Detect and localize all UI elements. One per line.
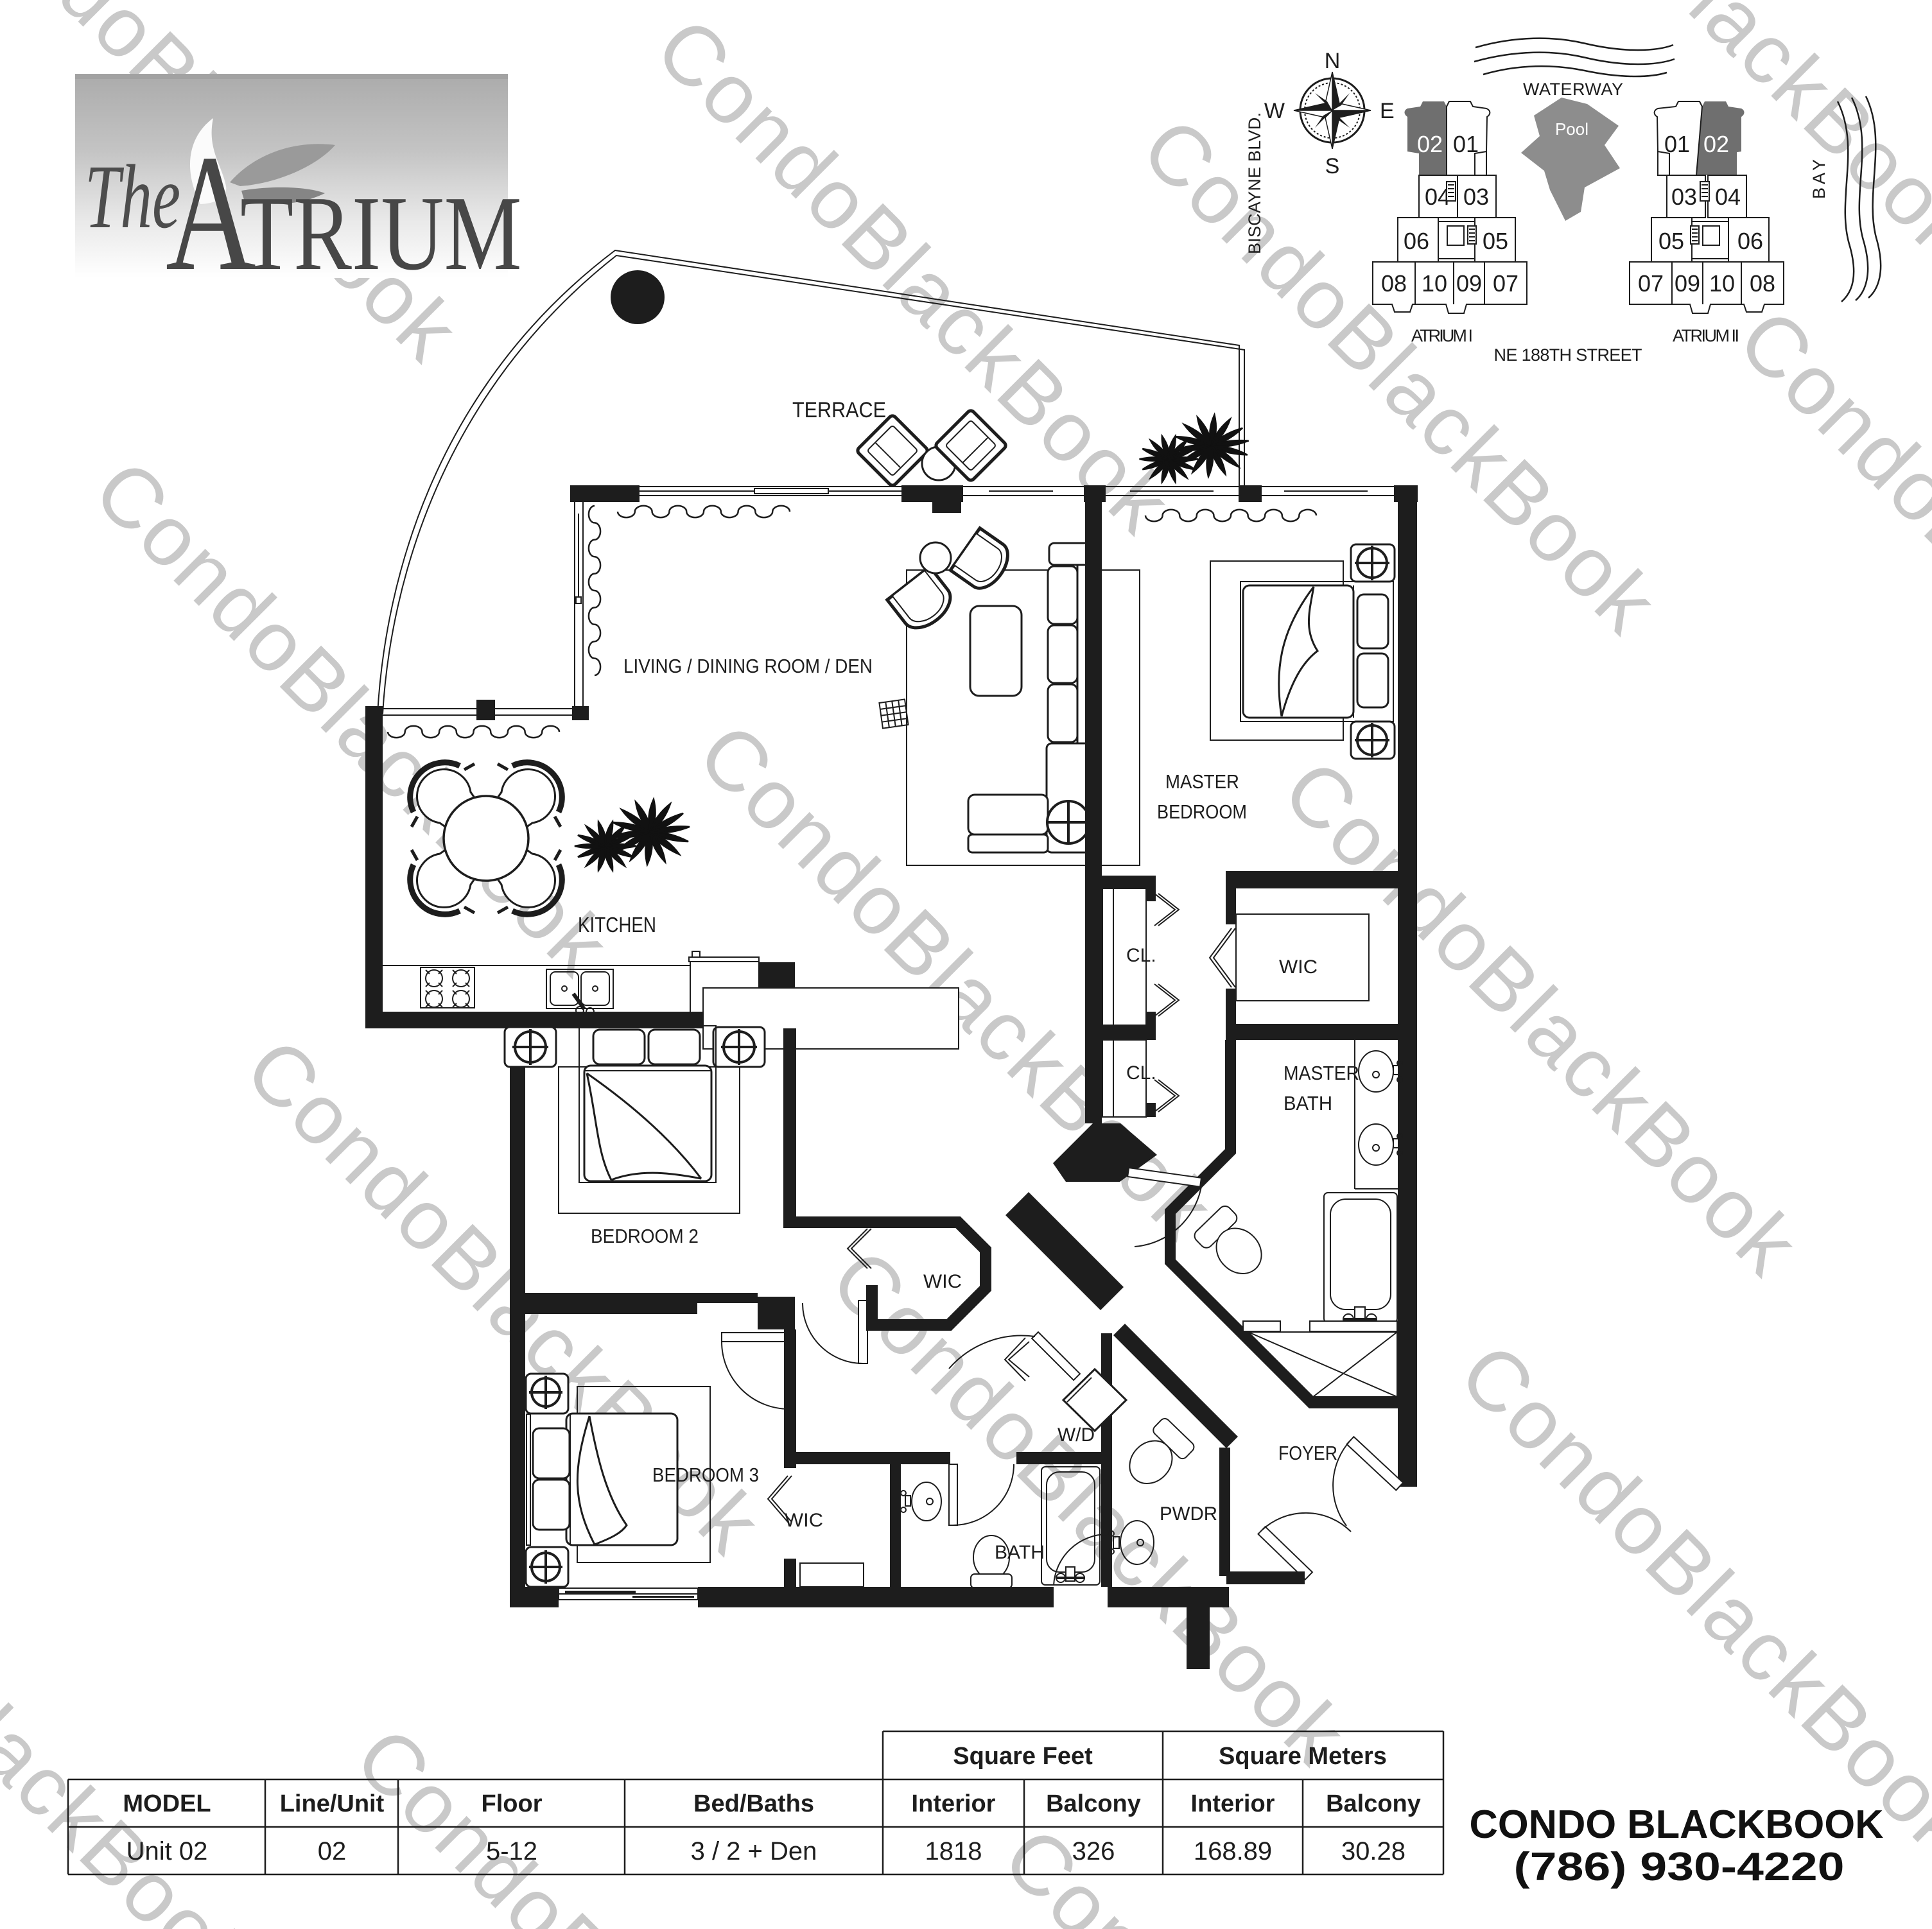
svg-text:04: 04 <box>1715 184 1741 210</box>
svg-text:S: S <box>1325 154 1340 178</box>
svg-text:WIC: WIC <box>1279 956 1318 978</box>
svg-text:CondoBlackBook: CondoBlackBook <box>638 0 1190 551</box>
svg-text:Interior: Interior <box>912 1790 996 1817</box>
svg-text:W: W <box>1264 99 1285 123</box>
svg-text:Line/Unit: Line/Unit <box>280 1790 385 1817</box>
svg-text:10: 10 <box>1709 270 1735 297</box>
svg-text:09: 09 <box>1675 270 1700 297</box>
svg-text:06: 06 <box>1737 228 1763 254</box>
svg-text:09: 09 <box>1456 270 1482 297</box>
svg-text:Interior: Interior <box>1191 1790 1275 1817</box>
svg-text:WATERWAY: WATERWAY <box>1523 80 1623 99</box>
svg-text:Balcony: Balcony <box>1326 1790 1421 1817</box>
svg-text:TERRACE: TERRACE <box>792 398 886 422</box>
svg-text:05: 05 <box>1483 228 1508 254</box>
svg-text:BEDROOM 3: BEDROOM 3 <box>652 1464 759 1486</box>
svg-text:TRIUM: TRIUM <box>240 174 522 292</box>
svg-text:(786) 930-4220: (786) 930-4220 <box>1514 1845 1845 1889</box>
svg-text:01: 01 <box>1453 131 1479 157</box>
svg-text:1818: 1818 <box>925 1837 982 1865</box>
svg-text:02: 02 <box>318 1837 347 1865</box>
svg-text:WIC: WIC <box>923 1271 962 1292</box>
svg-text:Pool: Pool <box>1555 119 1588 139</box>
svg-text:CONDO BLACKBOOK: CONDO BLACKBOOK <box>1470 1803 1884 1847</box>
svg-text:5-12: 5-12 <box>486 1837 537 1865</box>
svg-text:ATRIUM I: ATRIUM I <box>1411 326 1473 345</box>
svg-text:PWDR: PWDR <box>1160 1503 1217 1525</box>
svg-text:03: 03 <box>1463 184 1489 210</box>
svg-text:02: 02 <box>1703 131 1729 157</box>
svg-text:NE 188TH STREET: NE 188TH STREET <box>1494 345 1642 365</box>
svg-text:08: 08 <box>1750 270 1775 297</box>
svg-text:FOYER: FOYER <box>1278 1442 1337 1464</box>
svg-text:Floor: Floor <box>482 1790 543 1817</box>
svg-text:CondoBlackBook: CondoBlackBook <box>1442 1326 1932 1878</box>
svg-text:WIC: WIC <box>785 1510 823 1531</box>
svg-text:KITCHEN: KITCHEN <box>578 913 656 937</box>
svg-text:MASTER: MASTER <box>1165 770 1239 793</box>
svg-text:07: 07 <box>1638 270 1664 297</box>
svg-text:W/D: W/D <box>1057 1424 1095 1446</box>
svg-text:30.28: 30.28 <box>1341 1837 1405 1865</box>
svg-text:01: 01 <box>1664 131 1690 157</box>
svg-text:Bed/Baths: Bed/Baths <box>693 1790 814 1817</box>
svg-text:MODEL: MODEL <box>123 1790 211 1817</box>
svg-text:07: 07 <box>1493 270 1519 297</box>
svg-text:10: 10 <box>1422 270 1447 297</box>
svg-text:CL.: CL. <box>1126 1062 1156 1084</box>
svg-text:3 / 2 + Den: 3 / 2 + Den <box>691 1837 817 1865</box>
svg-text:E: E <box>1380 99 1395 123</box>
svg-text:08: 08 <box>1381 270 1407 297</box>
svg-text:MASTER: MASTER <box>1284 1062 1359 1084</box>
svg-text:BATH: BATH <box>1284 1092 1332 1114</box>
svg-text:CondoBlackBook: CondoBlackBook <box>1721 291 1932 843</box>
svg-text:326: 326 <box>1072 1837 1115 1865</box>
svg-text:03: 03 <box>1671 184 1697 210</box>
svg-text:BAY: BAY <box>1809 156 1829 199</box>
svg-text:CondoBlackBook: CondoBlackBook <box>338 1709 890 1929</box>
svg-text:BATH: BATH <box>995 1542 1045 1563</box>
svg-text:Balcony: Balcony <box>1046 1790 1141 1817</box>
svg-text:CL.: CL. <box>1126 945 1156 966</box>
svg-text:LIVING / DINING ROOM / DEN: LIVING / DINING ROOM / DEN <box>623 655 873 677</box>
svg-text:BEDROOM 2: BEDROOM 2 <box>591 1225 699 1247</box>
svg-text:Square Meters: Square Meters <box>1219 1743 1387 1770</box>
svg-text:Unit 02: Unit 02 <box>126 1837 208 1865</box>
svg-text:02: 02 <box>1417 131 1443 157</box>
svg-text:ATRIUM II: ATRIUM II <box>1673 326 1739 345</box>
svg-text:Square Feet: Square Feet <box>953 1743 1093 1770</box>
svg-text:BISCAYNE BLVD.: BISCAYNE BLVD. <box>1245 110 1264 254</box>
svg-text:06: 06 <box>1404 228 1429 254</box>
svg-text:N: N <box>1325 49 1341 73</box>
svg-text:168.89: 168.89 <box>1194 1837 1272 1865</box>
svg-text:BEDROOM: BEDROOM <box>1157 800 1247 823</box>
svg-text:05: 05 <box>1658 228 1684 254</box>
svg-text:CondoBlackBook: CondoBlackBook <box>1266 742 1818 1294</box>
